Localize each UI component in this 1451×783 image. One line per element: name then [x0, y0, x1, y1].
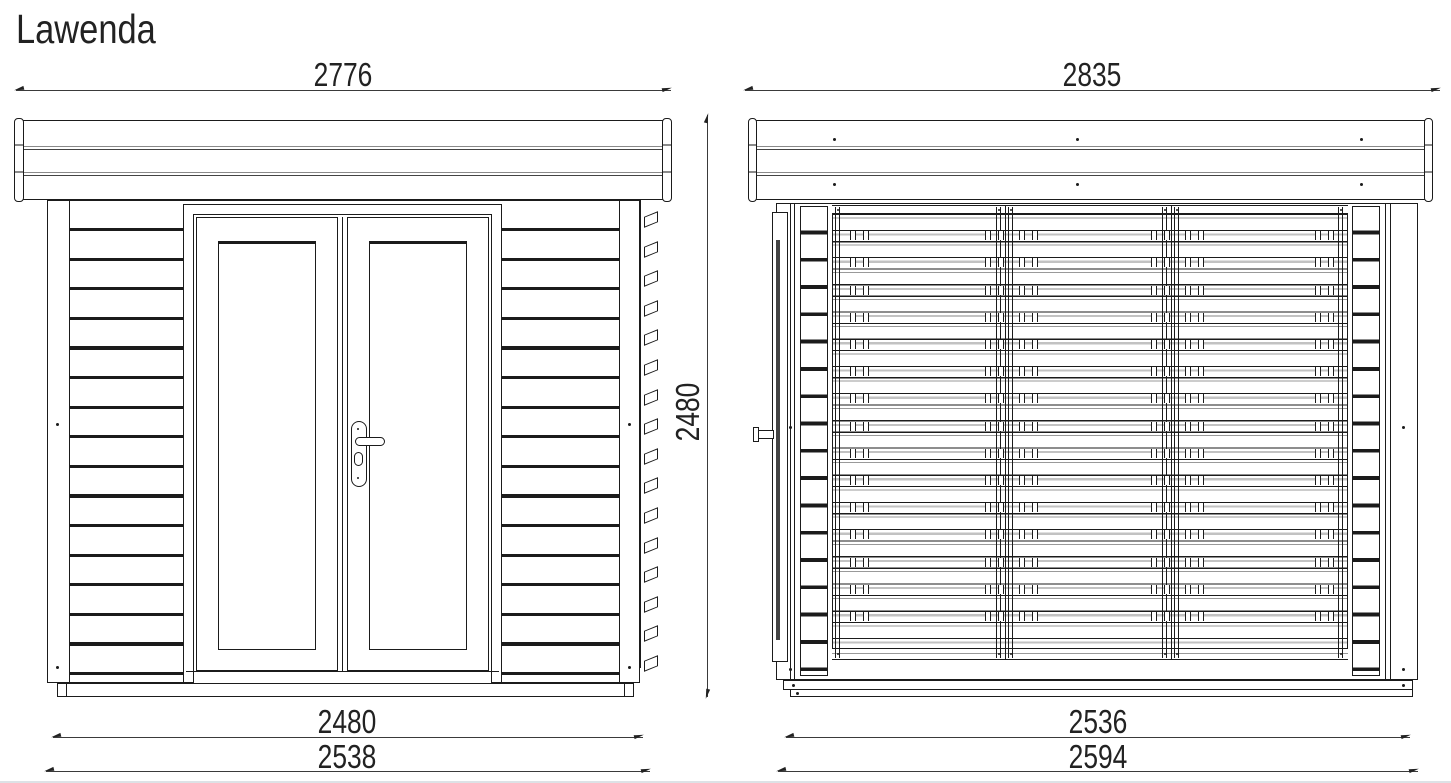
- batten-connector: [1315, 340, 1322, 349]
- panel-joint-line: [1005, 205, 1006, 660]
- batten-connector: [1032, 530, 1039, 539]
- batten-connector: [1328, 258, 1335, 267]
- batten-connector: [1198, 422, 1205, 431]
- batten-connector: [1032, 313, 1039, 322]
- corner-edge-line: [640, 200, 641, 668]
- batten-connector: [1032, 340, 1039, 349]
- batten-connector: [863, 422, 870, 431]
- batten-connector: [850, 367, 857, 376]
- batten-connector: [1019, 558, 1026, 567]
- siding-gap-line: [502, 583, 619, 586]
- fascia-end-cap-left: [14, 118, 24, 202]
- batten-connector: [850, 286, 857, 295]
- siding-gap-line: [502, 258, 619, 261]
- batten-connector: [1315, 286, 1322, 295]
- batten-connector: [985, 503, 992, 512]
- batten-connector: [863, 394, 870, 403]
- batten-connector: [1198, 449, 1205, 458]
- dim-arrow-down-icon: [704, 689, 710, 700]
- wall-edge-line: [794, 203, 795, 680]
- batten-connector: [1019, 231, 1026, 240]
- screw-dot: [837, 209, 839, 211]
- batten-connector: [998, 612, 1005, 621]
- batten-connector: [1164, 258, 1171, 267]
- batten-connector: [1315, 530, 1322, 539]
- door-meeting-stile-line: [342, 217, 343, 671]
- screw-dot: [1076, 183, 1079, 186]
- screw-dot: [998, 209, 1000, 211]
- batten-connector: [1185, 503, 1192, 512]
- batten-connector: [850, 313, 857, 322]
- slat-end: [644, 566, 658, 582]
- batten-connector: [1198, 585, 1205, 594]
- batten-connector: [1019, 449, 1026, 458]
- dim-value: 2480: [318, 703, 377, 741]
- batten-connector: [863, 313, 870, 322]
- louver-bottom-rail: [832, 648, 1348, 649]
- batten-connector: [1164, 340, 1171, 349]
- slat-end: [644, 330, 658, 346]
- screw-dot: [1176, 209, 1178, 211]
- batten-connector: [1198, 286, 1205, 295]
- batten-connector: [1032, 286, 1039, 295]
- batten-connector: [1198, 558, 1205, 567]
- panel-joint-line: [1171, 205, 1172, 660]
- screw-dot: [1402, 684, 1405, 687]
- batten-connector: [1185, 422, 1192, 431]
- wall-edge-line: [1390, 203, 1391, 680]
- batten-connector: [850, 612, 857, 621]
- siding-gap-line: [502, 613, 619, 616]
- screw-dot: [628, 666, 631, 669]
- batten-connector: [1198, 340, 1205, 349]
- batten-connector: [1164, 313, 1171, 322]
- siding-gap-line: [502, 672, 619, 675]
- batten-connector: [850, 394, 857, 403]
- batten-connector: [1019, 530, 1026, 539]
- siding-gap-line: [70, 583, 183, 586]
- batten-connector: [1032, 476, 1039, 485]
- batten-connector: [1151, 422, 1158, 431]
- batten-connector: [1032, 231, 1039, 240]
- batten-connector: [863, 476, 870, 485]
- batten-connector: [985, 258, 992, 267]
- dim-value: 2835: [1063, 56, 1122, 94]
- siding-gap-line: [502, 228, 619, 231]
- batten-connector: [1151, 530, 1158, 539]
- batten-connector: [1164, 530, 1171, 539]
- batten-connector: [1328, 558, 1335, 567]
- screw-dot: [1010, 209, 1012, 211]
- screw-dot: [1402, 668, 1405, 671]
- batten-connector: [1164, 558, 1171, 567]
- batten-connector: [1328, 286, 1335, 295]
- door-keyhole: [354, 452, 363, 466]
- batten-connector: [985, 558, 992, 567]
- batten-connector: [1164, 367, 1171, 376]
- batten-connector: [985, 231, 992, 240]
- door-threshold-line: [186, 671, 499, 672]
- batten-connector: [1032, 422, 1039, 431]
- batten-connector: [1151, 340, 1158, 349]
- slat-end: [644, 300, 658, 316]
- batten-connector: [1198, 231, 1205, 240]
- batten-connector: [998, 231, 1005, 240]
- siding-gap-line: [70, 258, 183, 261]
- batten-connector: [1315, 558, 1322, 567]
- siding-gap-line: [70, 287, 183, 290]
- slat-end: [644, 655, 658, 671]
- batten-connector: [1328, 394, 1335, 403]
- batten-connector: [1328, 585, 1335, 594]
- batten-connector: [863, 286, 870, 295]
- batten-connector: [1198, 258, 1205, 267]
- fascia-board-joint: [19, 172, 667, 176]
- batten-connector: [985, 422, 992, 431]
- batten-connector: [1019, 258, 1026, 267]
- batten-connector: [863, 367, 870, 376]
- batten-connector: [1198, 367, 1205, 376]
- batten-connector: [1328, 503, 1335, 512]
- screw-dot: [837, 653, 839, 655]
- louver-batten: [1338, 207, 1343, 658]
- batten-connector: [1185, 530, 1192, 539]
- dim-value: 2480: [669, 383, 707, 442]
- screw-dot: [1010, 653, 1012, 655]
- batten-connector: [1328, 313, 1335, 322]
- batten-connector: [1164, 476, 1171, 485]
- batten-connector: [1185, 313, 1192, 322]
- batten-connector: [985, 367, 992, 376]
- batten-connector: [985, 585, 992, 594]
- slat-end: [644, 478, 658, 494]
- siding-gap-line: [502, 317, 619, 320]
- slat-end: [644, 626, 658, 642]
- slat-end: [644, 359, 658, 375]
- plank-end-column-left: [800, 206, 828, 676]
- siding-gap-line: [502, 524, 619, 527]
- siding-gap-line: [502, 642, 619, 645]
- siding-gap-line: [502, 465, 619, 468]
- batten-connector: [1019, 585, 1026, 594]
- slat-end: [644, 507, 658, 523]
- batten-connector: [1032, 258, 1039, 267]
- siding-gap-line: [70, 406, 183, 409]
- batten-connector: [998, 422, 1005, 431]
- batten-connector: [1164, 286, 1171, 295]
- batten-connector: [1328, 422, 1335, 431]
- fascia-end-cap-left: [748, 118, 757, 202]
- batten-connector: [1164, 585, 1171, 594]
- batten-connector: [850, 476, 857, 485]
- batten-connector: [1164, 231, 1171, 240]
- dim-line: [46, 771, 650, 772]
- batten-connector: [1151, 558, 1158, 567]
- batten-connector: [1032, 449, 1039, 458]
- louver-batten: [835, 207, 840, 658]
- fascia-board-joint: [752, 146, 1426, 150]
- batten-connector: [850, 558, 857, 567]
- batten-connector: [850, 231, 857, 240]
- slat-end: [644, 448, 658, 464]
- door-handle-lever: [355, 437, 385, 446]
- dim-line: [778, 771, 1418, 772]
- batten-connector: [1151, 394, 1158, 403]
- batten-connector: [850, 503, 857, 512]
- batten-connector: [863, 585, 870, 594]
- base-joint-line: [624, 683, 625, 697]
- batten-connector: [1315, 476, 1322, 485]
- slat-end: [644, 596, 658, 612]
- batten-connector: [850, 585, 857, 594]
- siding-gap-line: [70, 524, 183, 527]
- screw-dot: [789, 668, 792, 671]
- batten-connector: [1328, 231, 1335, 240]
- batten-connector: [1032, 558, 1039, 567]
- dim-value: 2536: [1069, 703, 1128, 741]
- batten-connector: [985, 286, 992, 295]
- dim-line: [745, 90, 1440, 91]
- batten-connector: [998, 558, 1005, 567]
- front-roof-fascia: [18, 120, 668, 200]
- batten-connector: [1315, 394, 1322, 403]
- screw-dot: [1176, 653, 1178, 655]
- batten-connector: [1151, 258, 1158, 267]
- siding-gap-line: [502, 554, 619, 557]
- batten-connector: [1151, 612, 1158, 621]
- batten-connector: [985, 394, 992, 403]
- fascia-end-cap-right: [1424, 118, 1433, 202]
- batten-connector: [998, 394, 1005, 403]
- siding-gap-line: [502, 346, 619, 349]
- drawing-canvas: Lawenda 2776 2480: [0, 0, 1451, 783]
- batten-connector: [985, 612, 992, 621]
- door-profile-gasket: [776, 240, 780, 640]
- screw-dot: [1076, 138, 1079, 141]
- batten-connector: [1151, 231, 1158, 240]
- louver-bottom-rail-shadow: [832, 653, 1348, 654]
- batten-connector: [1032, 367, 1039, 376]
- batten-connector: [1315, 585, 1322, 594]
- wall-edge-line: [1385, 203, 1386, 680]
- slat-end: [644, 241, 658, 257]
- batten-connector: [1164, 503, 1171, 512]
- batten-connector: [998, 585, 1005, 594]
- batten-connector: [1185, 558, 1192, 567]
- batten-connector: [998, 449, 1005, 458]
- batten-connector: [1328, 612, 1335, 621]
- batten-connector: [863, 340, 870, 349]
- siding-gap-line: [70, 465, 183, 468]
- siding-gap-line: [70, 435, 183, 438]
- batten-connector: [1151, 313, 1158, 322]
- batten-connector: [1328, 530, 1335, 539]
- batten-connector: [850, 449, 857, 458]
- dim-line: [707, 115, 708, 697]
- batten-connector: [1032, 503, 1039, 512]
- batten-connector: [1185, 612, 1192, 621]
- batten-connector: [1019, 503, 1026, 512]
- batten-connector: [1019, 422, 1026, 431]
- siding-gap-line: [70, 228, 183, 231]
- batten-connector: [1019, 394, 1026, 403]
- batten-connector: [985, 313, 992, 322]
- fascia-board-joint: [19, 146, 667, 150]
- batten-connector: [863, 449, 870, 458]
- batten-connector: [850, 530, 857, 539]
- screw-dot: [998, 653, 1000, 655]
- batten-connector: [863, 231, 870, 240]
- siding-gap-line: [502, 494, 619, 497]
- side-base-step: [790, 690, 1413, 697]
- batten-connector: [1185, 476, 1192, 485]
- louver-screen: [832, 214, 1348, 648]
- batten-connector: [998, 476, 1005, 485]
- batten-connector: [1151, 367, 1158, 376]
- batten-connector: [985, 530, 992, 539]
- screw-dot: [1360, 138, 1363, 141]
- batten-connector: [1019, 367, 1026, 376]
- screw-dot: [789, 426, 792, 429]
- screw-dot: [833, 183, 836, 186]
- batten-connector: [1019, 286, 1026, 295]
- screw-dot: [56, 423, 59, 426]
- door-profile: [772, 212, 788, 662]
- batten-connector: [1315, 449, 1322, 458]
- batten-connector: [1185, 585, 1192, 594]
- batten-connector: [850, 258, 857, 267]
- screw-dot: [833, 138, 836, 141]
- louver-bottom-rail: [832, 659, 1348, 660]
- siding-gap-line: [70, 494, 183, 497]
- batten-connector: [1151, 585, 1158, 594]
- batten-connector: [863, 503, 870, 512]
- batten-connector: [1315, 313, 1322, 322]
- batten-connector: [985, 449, 992, 458]
- batten-connector: [1019, 476, 1026, 485]
- siding-gap-line: [70, 613, 183, 616]
- batten-connector: [1164, 394, 1171, 403]
- louver-batten: [1174, 207, 1179, 658]
- siding-gap-line: [70, 346, 183, 349]
- batten-connector: [850, 422, 857, 431]
- batten-connector: [863, 612, 870, 621]
- batten-connector: [1198, 476, 1205, 485]
- screw-dot: [1402, 426, 1405, 429]
- batten-connector: [1185, 394, 1192, 403]
- batten-connector: [998, 340, 1005, 349]
- batten-connector: [998, 367, 1005, 376]
- batten-connector: [1198, 313, 1205, 322]
- slat-end: [644, 270, 658, 286]
- batten-connector: [998, 503, 1005, 512]
- siding-gap-line: [502, 376, 619, 379]
- batten-connector: [1328, 367, 1335, 376]
- wall-edge-line: [790, 203, 791, 680]
- dim-arrow-up-icon: [704, 113, 710, 124]
- batten-connector: [1315, 258, 1322, 267]
- batten-connector: [1151, 476, 1158, 485]
- batten-connector: [1328, 449, 1335, 458]
- screw-dot: [1164, 653, 1166, 655]
- batten-connector: [1185, 367, 1192, 376]
- fascia-end-cap-right: [662, 118, 672, 202]
- batten-connector: [1019, 612, 1026, 621]
- batten-connector: [1198, 530, 1205, 539]
- batten-connector: [1151, 503, 1158, 512]
- base-joint-line: [66, 683, 67, 697]
- siding-gap-line: [70, 554, 183, 557]
- batten-connector: [1185, 286, 1192, 295]
- slat-end: [644, 537, 658, 553]
- batten-connector: [1328, 476, 1335, 485]
- batten-connector: [1185, 231, 1192, 240]
- batten-connector: [1315, 612, 1322, 621]
- batten-connector: [1315, 422, 1322, 431]
- screw-dot: [792, 684, 795, 687]
- batten-connector: [1151, 449, 1158, 458]
- batten-connector: [1315, 503, 1322, 512]
- siding-gap-line: [70, 672, 183, 675]
- dim-line: [16, 90, 671, 91]
- batten-connector: [1032, 612, 1039, 621]
- screw-dot: [1164, 209, 1166, 211]
- screw-dot: [1340, 653, 1342, 655]
- front-base: [57, 683, 634, 697]
- louver-batten: [1008, 207, 1013, 658]
- screw-dot: [1340, 209, 1342, 211]
- screw-dot: [1360, 183, 1363, 186]
- batten-connector: [1164, 449, 1171, 458]
- fascia-board-joint: [752, 172, 1426, 176]
- siding-gap-line: [70, 642, 183, 645]
- batten-connector: [1198, 503, 1205, 512]
- batten-connector: [850, 340, 857, 349]
- slat-end: [644, 389, 658, 405]
- door-handle-grip-profile: [753, 427, 759, 442]
- plank-end-column-right: [1352, 206, 1380, 676]
- siding-gap-line: [70, 376, 183, 379]
- batten-connector: [998, 313, 1005, 322]
- door-glass-right: [369, 241, 467, 650]
- batten-connector: [1185, 449, 1192, 458]
- slat-end: [644, 418, 658, 434]
- siding-gap-line: [502, 287, 619, 290]
- side-base: [783, 680, 1413, 690]
- batten-connector: [863, 258, 870, 267]
- siding-gap-line: [502, 406, 619, 409]
- batten-connector: [863, 530, 870, 539]
- batten-connector: [1198, 612, 1205, 621]
- page-title: Lawenda: [16, 6, 156, 53]
- batten-connector: [985, 476, 992, 485]
- batten-connector: [1019, 340, 1026, 349]
- batten-connector: [1032, 585, 1039, 594]
- siding-gap-line: [70, 317, 183, 320]
- batten-connector: [1151, 286, 1158, 295]
- batten-connector: [1185, 340, 1192, 349]
- batten-connector: [985, 340, 992, 349]
- batten-connector: [1315, 231, 1322, 240]
- screw-dot: [56, 666, 59, 669]
- batten-connector: [1019, 313, 1026, 322]
- corner-trim-line-right: [619, 200, 620, 683]
- screw-dot: [796, 692, 799, 695]
- batten-connector: [998, 530, 1005, 539]
- batten-connector: [1164, 612, 1171, 621]
- batten-connector: [998, 258, 1005, 267]
- corner-trim-line-left: [69, 200, 70, 683]
